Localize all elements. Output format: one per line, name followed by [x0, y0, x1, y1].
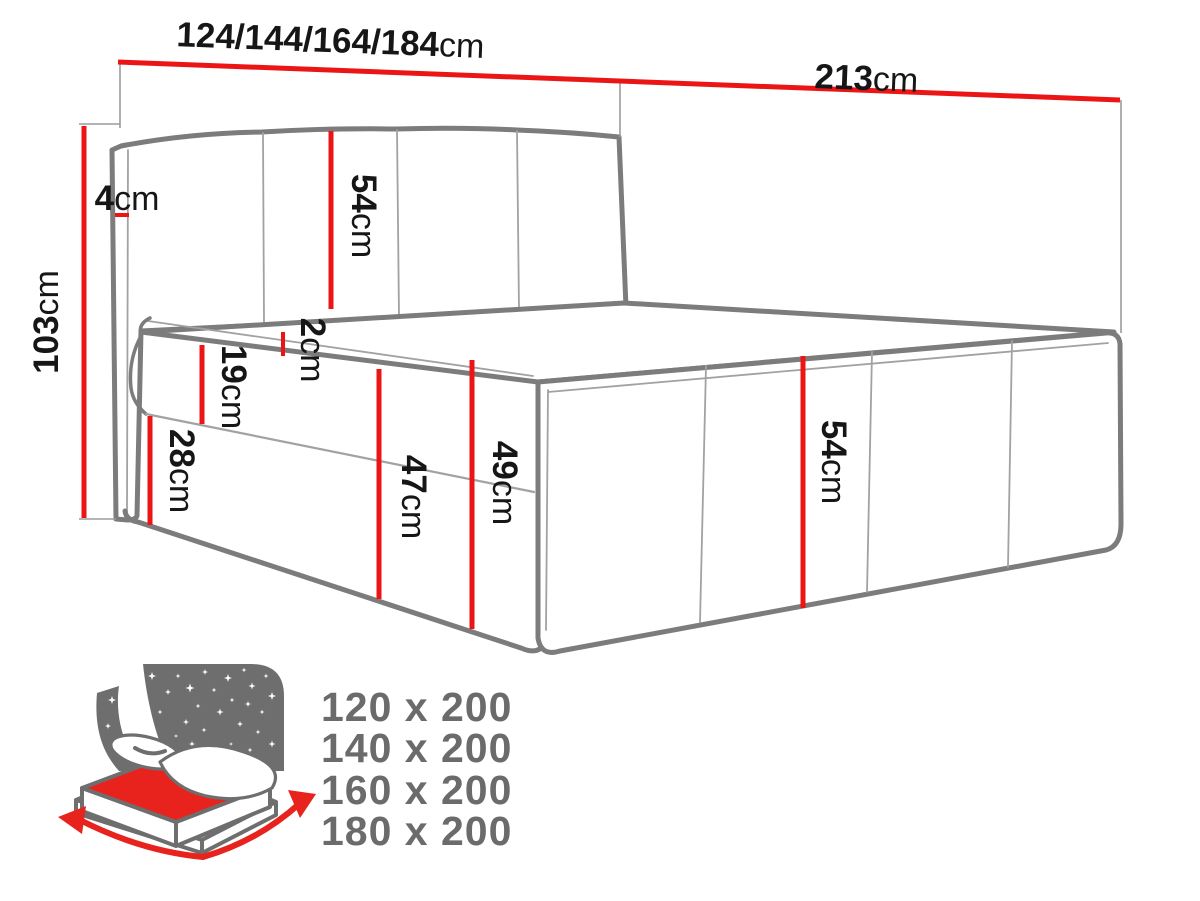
size-option-4: 180 x 200	[321, 808, 512, 854]
label-mattress: 19cm	[214, 345, 253, 429]
size-options-list: 120 x 200 140 x 200 160 x 200 180 x 200	[321, 684, 512, 854]
label-depth: 213cm	[814, 57, 919, 100]
label-total-height: 103cm	[27, 270, 66, 374]
star-glyph	[128, 709, 134, 715]
diagram-canvas: 124/144/164/184cm 213cm 103cm 4cm 54cm 2…	[0, 0, 1200, 901]
label-headboard-depth: 4cm	[95, 179, 160, 218]
size-icon	[58, 664, 316, 857]
star-glyph	[126, 688, 131, 693]
headboard-seam-1	[263, 133, 264, 322]
label-base: 28cm	[162, 429, 201, 513]
size-option-3: 160 x 200	[321, 767, 512, 813]
size-option-2: 140 x 200	[321, 725, 512, 771]
bed-dimension-diagram: 124/144/164/184cm 213cm 103cm 4cm 54cm 2…	[0, 0, 1200, 901]
base-bottom-edge	[125, 511, 544, 651]
bed-drawing	[112, 128, 1121, 652]
mattress-base-seam	[146, 414, 534, 492]
label-side-corner: 49cm	[485, 441, 524, 525]
star-glyph	[144, 728, 149, 733]
label-headboard-panel: 54cm	[344, 174, 383, 258]
label-topper: 2cm	[293, 318, 332, 383]
dim-line-width-and-depth	[118, 62, 1120, 100]
label-foot-panel: 54cm	[814, 420, 853, 504]
label-top-width: 124/144/164/184cm	[176, 15, 485, 66]
size-option-1: 120 x 200	[321, 684, 512, 730]
label-side-front: 47cm	[394, 455, 433, 539]
